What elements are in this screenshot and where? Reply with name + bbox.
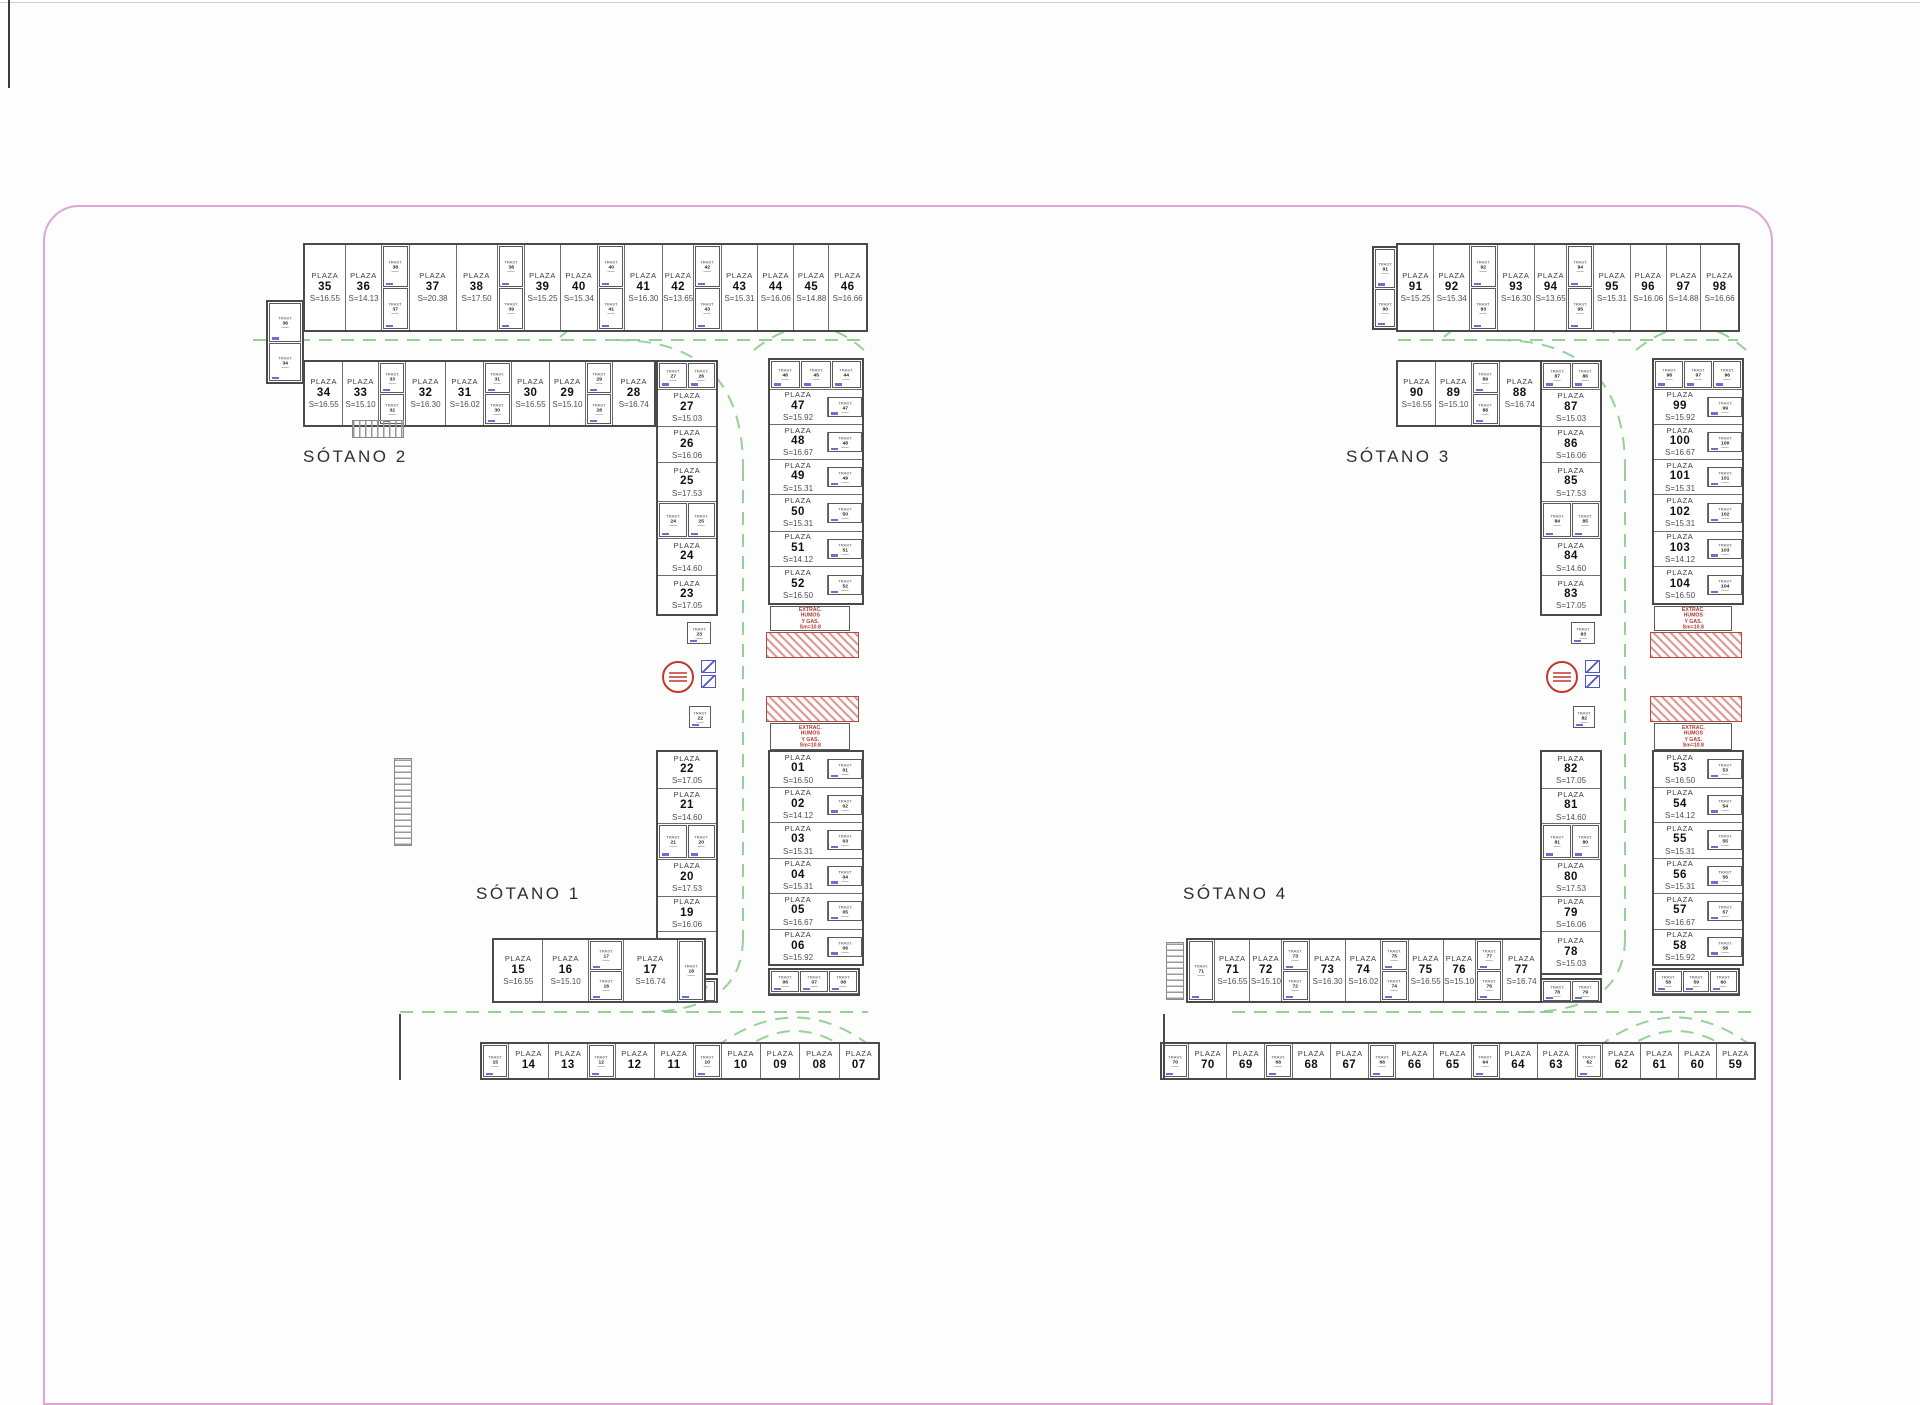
stall-type-text: PLAZA <box>1401 1050 1428 1059</box>
parking-stall: PLAZA96S=16.06 <box>1631 245 1667 330</box>
stall-type-text: PLAZA <box>1233 1050 1260 1059</box>
storage-room-slot: TRAST.101 <box>1707 467 1742 487</box>
stall-number: 57 <box>1673 904 1687 917</box>
storage-room-label: TRAST.83 <box>1576 627 1590 638</box>
stall-type-text: PLAZA <box>1537 272 1564 281</box>
stall-number: 90 <box>1410 387 1424 400</box>
stall-area: S=17.53 <box>1556 489 1586 498</box>
stall-type-text: PLAZA <box>1350 955 1377 964</box>
drawing-sheet: TRAST.36TRAST.34PLAZA35S=16.55PLAZA36S=1… <box>0 0 1920 1080</box>
storage-room-label: TRAST.62 <box>1582 1055 1596 1066</box>
stall-type-text: PLAZA <box>1667 569 1694 578</box>
storage-room-area-text <box>1481 383 1488 384</box>
stall-type-text: PLAZA <box>1558 937 1585 946</box>
smoke-extraction-vent <box>1650 632 1742 658</box>
extraction-label-line: HUMOS <box>1683 613 1702 619</box>
storage-room-column: TRAST.77TRAST.76 <box>1476 940 1503 1001</box>
stall-number: 77 <box>1515 964 1529 977</box>
storage-room: TRAST.57 <box>1708 901 1742 921</box>
storage-room-label: TRAST.104 <box>1718 579 1732 590</box>
stall-number: 102 <box>1670 506 1691 519</box>
storage-room: TRAST.89 <box>1473 363 1498 393</box>
storage-room-number: 104 <box>1721 584 1729 589</box>
storage-room-label: TRAST.102 <box>1718 507 1732 518</box>
storage-room-slot: TRAST.53 <box>1707 759 1742 779</box>
parking-stall: PLAZA99S=15.92TRAST.99 <box>1654 390 1742 425</box>
storage-room: TRAST.102 <box>1708 503 1742 523</box>
stall-type-text: PLAZA <box>1667 860 1694 869</box>
storage-room-number: 102 <box>1721 512 1729 517</box>
parking-stall: PLAZA102S=15.31TRAST.102 <box>1654 495 1742 531</box>
stall-number: 63 <box>1549 1059 1563 1072</box>
parking-stall: PLAZA64 <box>1500 1044 1538 1078</box>
storage-room-number: 68 <box>1276 1060 1282 1065</box>
storage-room: TRAST.71 <box>1189 941 1213 1000</box>
stall-type-text: PLAZA <box>1503 272 1530 281</box>
storage-room-label: TRAST.68 <box>1272 1055 1286 1066</box>
stall-label: PLAZA95S=15.31 <box>1597 272 1627 303</box>
storage-room: TRAST.59 <box>1683 971 1710 992</box>
stall-label: PLAZA90S=16.55 <box>1402 378 1432 409</box>
stall-area: S=15.03 <box>1556 959 1586 968</box>
storage-room-area-text <box>1381 313 1388 314</box>
extraction-label-line: HUMOS <box>1683 731 1702 737</box>
storage-room-label: TRAST.94 <box>1573 261 1587 272</box>
stall-area: S=17.53 <box>1556 884 1586 893</box>
stall-area: S=15.31 <box>1665 484 1695 493</box>
stall-type-text: PLAZA <box>1336 1050 1363 1059</box>
parking-stall: PLAZA58S=15.92TRAST.58 <box>1654 930 1742 965</box>
stall-number: 72 <box>1259 964 1273 977</box>
stall-type-text: PLAZA <box>1684 1050 1711 1059</box>
storage-room-area-text <box>1391 990 1398 991</box>
storage-room-area-text <box>1292 960 1299 961</box>
parking-col-87-83: TRAST.87TRAST.86PLAZA87S=15.03PLAZA86S=1… <box>1540 360 1602 616</box>
stall-area: S=15.10 <box>1444 977 1474 986</box>
parking-stall: PLAZA92S=15.34 <box>1434 245 1470 330</box>
storage-room-label: TRAST.95 <box>1573 303 1587 314</box>
extraction-label-line: Y GAS. <box>1684 619 1702 625</box>
storage-room-number: 71 <box>1198 969 1204 974</box>
stall-type-text: PLAZA <box>1412 955 1439 964</box>
stall-type-text: PLAZA <box>1646 1050 1673 1059</box>
stall-area: S=16.74 <box>1507 977 1537 986</box>
stall-area: S=14.12 <box>1665 555 1695 564</box>
stall-number: 104 <box>1670 578 1691 591</box>
storage-room-number: 54 <box>1722 803 1728 808</box>
storage-room-area-text <box>1582 525 1589 526</box>
storage-room-label: TRAST.84 <box>1550 515 1564 526</box>
storage-room-area-text <box>1553 996 1560 997</box>
stall-label: PLAZA70 <box>1195 1050 1222 1072</box>
storage-room: TRAST.56 <box>1708 866 1742 886</box>
storage-room-number: 80 <box>1582 840 1588 845</box>
storage-room-label: TRAST.60 <box>1717 976 1731 987</box>
stall-number: 98 <box>1713 281 1727 294</box>
storage-room-area-text <box>1720 986 1727 987</box>
stall-type-text: PLAZA <box>1667 896 1694 905</box>
fire-equipment-text-line <box>1553 672 1570 674</box>
floor-label-sotano-2: SÓTANO 2 <box>303 447 408 467</box>
stall-type-text: PLAZA <box>1558 467 1585 476</box>
storage-room-area-text <box>1582 846 1589 847</box>
stall-type-text: PLAZA <box>1402 272 1429 281</box>
storage-room-label: TRAST.92 <box>1477 261 1491 272</box>
stall-number: 55 <box>1673 833 1687 846</box>
stall-number: 92 <box>1445 281 1459 294</box>
storage-room-slot: TRAST.54 <box>1707 795 1742 815</box>
storage-room: TRAST.94 <box>1568 246 1592 287</box>
storage-room-label: TRAST.101 <box>1718 472 1732 483</box>
stall-area: S=15.10 <box>1251 977 1281 986</box>
storage-room-slot: TRAST.102 <box>1707 503 1742 523</box>
storage-room-column: TRAST.91TRAST.90 <box>1374 248 1396 328</box>
storage-room: TRAST.55 <box>1708 830 1742 850</box>
stall-label: PLAZA94S=13.65 <box>1536 272 1566 303</box>
storage-room-label: TRAST.53 <box>1718 764 1732 775</box>
stall-number: 56 <box>1673 869 1687 882</box>
storage-room-number: 87 <box>1554 374 1560 379</box>
stall-number: 84 <box>1564 550 1578 563</box>
stall-number: 96 <box>1641 281 1655 294</box>
stall-type-text: PLAZA <box>1667 497 1694 506</box>
parking-stall: PLAZA70 <box>1189 1044 1227 1078</box>
stall-label: PLAZA74S=16.02 <box>1348 955 1378 986</box>
storage-room-column: TRAST.73TRAST.72 <box>1282 940 1309 1001</box>
storage-room: TRAST.62 <box>1577 1045 1601 1077</box>
storage-room: TRAST.81 <box>1543 825 1571 857</box>
parking-stall: PLAZA80S=17.53 <box>1542 860 1600 897</box>
storage-room: TRAST.84 <box>1543 503 1571 537</box>
extraction-label: EXTRAC.HUMOSY GAS.Sm=10.8 <box>1654 606 1732 631</box>
storage-room-area-text <box>1275 1066 1282 1067</box>
parking-stall: PLAZA101S=15.31TRAST.101 <box>1654 460 1742 495</box>
stall-number: 99 <box>1673 400 1687 413</box>
stall-label: PLAZA77S=16.74 <box>1507 955 1537 986</box>
storage-room: TRAST.90 <box>1375 289 1395 328</box>
stall-area: S=14.60 <box>1556 564 1586 573</box>
stall-number: 85 <box>1564 475 1578 488</box>
storage-room-slot: TRAST.58 <box>1707 937 1742 957</box>
stall-type-text: PLAZA <box>1667 533 1694 542</box>
floor-label-sotano-4: SÓTANO 4 <box>1183 884 1288 904</box>
storage-room-group: TRAST.87TRAST.86 <box>1542 362 1600 390</box>
storage-room: TRAST.95 <box>1568 288 1592 329</box>
stall-number: 67 <box>1342 1059 1356 1072</box>
storage-room-area-text <box>1721 774 1728 775</box>
parking-stall: PLAZA86S=16.06 <box>1542 427 1600 464</box>
stall-number: 79 <box>1564 907 1578 920</box>
stall-type-text: PLAZA <box>1558 898 1585 907</box>
stall-number: 82 <box>1564 763 1578 776</box>
storage-room-column: TRAST.64 <box>1472 1044 1499 1078</box>
storage-room-area-text <box>1480 271 1487 272</box>
storage-room-column: TRAST.89TRAST.88 <box>1472 362 1500 425</box>
stall-type-text: PLAZA <box>1438 272 1465 281</box>
parking-stall: PLAZA95S=15.31 <box>1594 245 1630 330</box>
storage-room-column: TRAST.62 <box>1576 1044 1603 1078</box>
storage-room: TRAST.73 <box>1283 941 1307 970</box>
stall-area: S=15.34 <box>1437 294 1467 303</box>
stall-type-text: PLAZA <box>1543 1050 1570 1059</box>
parking-row-90-88: PLAZA90S=16.55PLAZA89S=15.10TRAST.89TRAS… <box>1396 360 1542 427</box>
stall-label: PLAZA86S=16.06 <box>1556 429 1586 460</box>
stall-area: S=16.50 <box>1665 776 1695 785</box>
storage-room-number: 76 <box>1486 984 1492 989</box>
storage-room-slot: TRAST.103 <box>1707 539 1742 559</box>
storage-room-label: TRAST.56 <box>1718 870 1732 881</box>
parking-stall: PLAZA65 <box>1434 1044 1472 1078</box>
storage-room-number: 94 <box>1577 265 1583 270</box>
parking-stall: PLAZA55S=15.31TRAST.55 <box>1654 823 1742 859</box>
extraction-label-text: EXTRAC.HUMOSY GAS.Sm=10.8 <box>1682 725 1705 749</box>
stall-number: 103 <box>1670 542 1691 555</box>
storage-room-area-text <box>1694 379 1701 380</box>
storage-room-column: TRAST.92TRAST.93 <box>1470 245 1497 330</box>
storage-room-area-text <box>1553 380 1560 381</box>
storage-room-area-text <box>1485 990 1492 991</box>
storage-room-label: TRAST.66 <box>1375 1055 1389 1066</box>
stall-type-text: PLAZA <box>1558 862 1585 871</box>
parking-stall: PLAZA91S=15.25 <box>1398 245 1434 330</box>
parking-stall: PLAZA68 <box>1293 1044 1331 1078</box>
storage-room: TRAST.77 <box>1477 941 1501 970</box>
parking-col-53-58: PLAZA53S=16.50TRAST.53PLAZA54S=14.12TRAS… <box>1652 750 1744 966</box>
storage-room-area-text <box>1292 990 1299 991</box>
parking-stall: PLAZA74S=16.02 <box>1346 940 1381 1001</box>
storage-room-area-text <box>1485 960 1492 961</box>
stall-label: PLAZA63 <box>1543 1050 1570 1072</box>
stall-number: 64 <box>1511 1059 1525 1072</box>
stall-label: PLAZA72S=15.10 <box>1251 955 1281 986</box>
storage-room-area-text <box>1721 845 1728 846</box>
stall-label: PLAZA67 <box>1336 1050 1363 1072</box>
stall-area: S=15.31 <box>1665 847 1695 856</box>
stall-number: 73 <box>1321 964 1335 977</box>
storage-room-group: TRAST.81TRAST.80 <box>1542 824 1600 859</box>
storage-room: TRAST.83 <box>1571 622 1595 642</box>
storage-room-area-text <box>1665 379 1672 380</box>
storage-room-label: TRAST.77 <box>1482 950 1496 961</box>
parking-stall: PLAZA83S=17.05 <box>1542 576 1600 614</box>
storage-room: TRAST.97 <box>1684 361 1712 388</box>
storage-room-label: TRAST.79 <box>1578 986 1592 997</box>
stall-number: 83 <box>1564 588 1578 601</box>
storage-room: TRAST.80 <box>1572 825 1600 857</box>
smoke-extraction-vent <box>1650 696 1742 722</box>
storage-room-number: 59 <box>1693 980 1699 985</box>
storage-room-number: 84 <box>1554 519 1560 524</box>
stall-number: 54 <box>1673 798 1687 811</box>
stall-area: S=14.88 <box>1668 294 1698 303</box>
stall-type-text: PLAZA <box>1722 1050 1749 1059</box>
parking-stall-main: PLAZA103S=14.12 <box>1654 533 1706 564</box>
stall-type-text: PLAZA <box>1440 378 1467 387</box>
stall-number: 89 <box>1447 387 1461 400</box>
parking-stall-main: PLAZA102S=15.31 <box>1654 497 1706 528</box>
stall-number: 75 <box>1419 964 1433 977</box>
stall-type-text: PLAZA <box>1558 791 1585 800</box>
stall-type-text: PLAZA <box>1506 378 1533 387</box>
storage-room: TRAST.58 <box>1708 937 1742 957</box>
storage-room-label: TRAST.74 <box>1388 980 1402 991</box>
storage-room-label: TRAST.86 <box>1578 370 1592 381</box>
storage-room-number: 82 <box>1581 716 1587 721</box>
storage-under-82-78: TRAST.78TRAST.79 <box>1540 978 1602 1003</box>
storage-room-area-text <box>1721 447 1728 448</box>
floor-plan-sotano-3-4: TRAST.91TRAST.90PLAZA91S=15.25PLAZA92S=1… <box>0 0 1920 1080</box>
stall-number: 87 <box>1564 401 1578 414</box>
storage-room-number: 77 <box>1486 954 1492 959</box>
stall-label: PLAZA81S=14.60 <box>1556 791 1586 822</box>
stall-type-text: PLAZA <box>1706 272 1733 281</box>
stall-label: PLAZA83S=17.05 <box>1556 580 1586 611</box>
storage-room-number: 99 <box>1722 405 1728 410</box>
stall-label: PLAZA85S=17.53 <box>1556 467 1586 498</box>
storage-room-label: TRAST.90 <box>1378 302 1392 313</box>
stall-area: S=15.31 <box>1665 882 1695 891</box>
parking-stall: PLAZA87S=15.03 <box>1542 390 1600 427</box>
storage-room-area-text <box>1721 482 1728 483</box>
storage-room-area-text <box>1480 313 1487 314</box>
storage-room-label: TRAST.98 <box>1662 369 1676 380</box>
storage-room-area-text <box>1721 412 1728 413</box>
stall-number: 69 <box>1239 1059 1253 1072</box>
parking-stall-main: PLAZA56S=15.31 <box>1654 860 1706 891</box>
storage-room-area-text <box>1553 846 1560 847</box>
parking-stall: PLAZA103S=14.12TRAST.103 <box>1654 532 1742 567</box>
stall-label: PLAZA56S=15.31 <box>1665 860 1695 891</box>
stall-type-text: PLAZA <box>1439 1050 1466 1059</box>
storage-room-slot: TRAST.100 <box>1707 432 1742 452</box>
storage-room: TRAST.54 <box>1708 795 1742 815</box>
storage-room: TRAST.101 <box>1708 467 1742 487</box>
stall-number: 91 <box>1409 281 1423 294</box>
stall-area: S=14.12 <box>1665 811 1695 820</box>
storage-room: TRAST.60 <box>1710 971 1737 992</box>
parking-row-71-77: TRAST.71PLAZA71S=16.55PLAZA72S=15.10TRAS… <box>1186 938 1542 1003</box>
storage-room-number: 70 <box>1172 1060 1178 1065</box>
stall-type-text: PLAZA <box>1298 1050 1325 1059</box>
storage-room-number: 64 <box>1483 1060 1489 1065</box>
stall-type-text: PLAZA <box>1446 955 1473 964</box>
storage-room-slot: TRAST.56 <box>1707 866 1742 886</box>
storage-room-slot: TRAST.104 <box>1707 575 1742 595</box>
parking-stall-main: PLAZA104S=16.50 <box>1654 569 1706 600</box>
stall-area: S=16.66 <box>1705 294 1735 303</box>
storage-room: TRAST.82 <box>1573 706 1595 728</box>
stall-label: PLAZA92S=15.34 <box>1437 272 1467 303</box>
parking-stall: PLAZA73S=16.30 <box>1310 940 1346 1001</box>
parking-stall: PLAZA75S=16.55 <box>1409 940 1444 1001</box>
storage-room-area-text <box>1665 986 1672 987</box>
stall-area: S=15.10 <box>1438 400 1468 409</box>
stall-area: S=16.74 <box>1505 400 1535 409</box>
stall-number: 88 <box>1513 387 1527 400</box>
parking-stall: PLAZA59 <box>1717 1044 1754 1078</box>
stall-area: S=16.67 <box>1665 918 1695 927</box>
stall-label: PLAZA66 <box>1401 1050 1428 1072</box>
storage-room-number: 101 <box>1721 476 1729 481</box>
stall-label: PLAZA60 <box>1684 1050 1711 1072</box>
storage-room-number: 90 <box>1382 306 1388 311</box>
stall-area: S=16.06 <box>1633 294 1663 303</box>
wall-segment <box>1163 1014 1165 1080</box>
stall-area: S=17.05 <box>1556 776 1586 785</box>
parking-stall-main: PLAZA53S=16.50 <box>1654 754 1706 785</box>
storage-room-number: 97 <box>1695 373 1701 378</box>
parking-stall-main: PLAZA100S=16.67 <box>1654 427 1706 458</box>
stall-type-text: PLAZA <box>1667 789 1694 798</box>
stall-number: 100 <box>1670 435 1691 448</box>
storage-room-area-text <box>1692 986 1699 987</box>
storage-room: TRAST.100 <box>1708 432 1742 452</box>
stall-area: S=16.50 <box>1665 591 1695 600</box>
storage-room: TRAST.76 <box>1477 971 1501 1000</box>
stall-number: 78 <box>1564 946 1578 959</box>
stall-type-text: PLAZA <box>1314 955 1341 964</box>
storage-room-number: 60 <box>1721 980 1727 985</box>
storage-room-label: TRAST.76 <box>1482 980 1496 991</box>
storage-room-area-text <box>1582 996 1589 997</box>
extraction-label-line: Y GAS. <box>1684 737 1702 743</box>
stall-number: 71 <box>1226 964 1240 977</box>
elevator-shaft <box>1585 675 1600 688</box>
extraction-label-line: EXTRAC. <box>1682 607 1705 613</box>
storage-room: TRAST.104 <box>1708 575 1742 595</box>
stall-type-text: PLAZA <box>1667 462 1694 471</box>
parking-stall: PLAZA78S=15.03 <box>1542 932 1600 973</box>
storage-room-label: TRAST.88 <box>1478 403 1492 414</box>
parking-stall: PLAZA84S=14.60 <box>1542 539 1600 576</box>
stall-area: S=16.02 <box>1348 977 1378 986</box>
storage-room-label: TRAST.91 <box>1378 263 1392 274</box>
storage-room-column: TRAST.94TRAST.95 <box>1567 245 1594 330</box>
stall-label: PLAZA98S=16.66 <box>1705 272 1735 303</box>
storage-room-label: TRAST.93 <box>1477 303 1491 314</box>
stall-label: PLAZA91S=15.25 <box>1401 272 1431 303</box>
stall-type-text: PLAZA <box>1558 580 1585 589</box>
parking-col-82-78: PLAZA82S=17.05PLAZA81S=14.60TRAST.81TRAS… <box>1540 750 1602 975</box>
stall-label: PLAZA65 <box>1439 1050 1466 1072</box>
stall-label: PLAZA69 <box>1233 1050 1260 1072</box>
storage-room-area-text <box>1197 975 1204 976</box>
storage-room-label: TRAST.100 <box>1718 436 1732 447</box>
storage-room: TRAST.70 <box>1163 1045 1187 1077</box>
stall-label: PLAZA78S=15.03 <box>1556 937 1586 968</box>
storage-room: TRAST.82 <box>1573 706 1595 726</box>
parking-stall: PLAZA67 <box>1331 1044 1369 1078</box>
stall-label: PLAZA84S=14.60 <box>1556 542 1586 573</box>
stall-number: 101 <box>1670 470 1691 483</box>
parking-stall: PLAZA61 <box>1641 1044 1679 1078</box>
storage-room-area-text <box>1482 1066 1489 1067</box>
parking-stall: PLAZA72S=15.10 <box>1250 940 1282 1001</box>
storage-room-label: TRAST.54 <box>1718 799 1732 810</box>
stall-number: 86 <box>1564 438 1578 451</box>
extraction-label-line: EXTRAC. <box>1682 725 1705 731</box>
stall-label: PLAZA59 <box>1722 1050 1749 1072</box>
stall-type-text: PLAZA <box>1558 429 1585 438</box>
stall-number: 70 <box>1201 1059 1215 1072</box>
storage-room-number: 73 <box>1293 954 1299 959</box>
stall-number: 74 <box>1356 964 1370 977</box>
storage-room: TRAST.99 <box>1708 397 1742 417</box>
storage-room-group: TRAST.98TRAST.97TRAST.96 <box>1654 360 1742 390</box>
storage-room-area-text <box>1378 1066 1385 1067</box>
parking-stall: PLAZA93S=16.30 <box>1498 245 1536 330</box>
stall-number: 58 <box>1673 940 1687 953</box>
